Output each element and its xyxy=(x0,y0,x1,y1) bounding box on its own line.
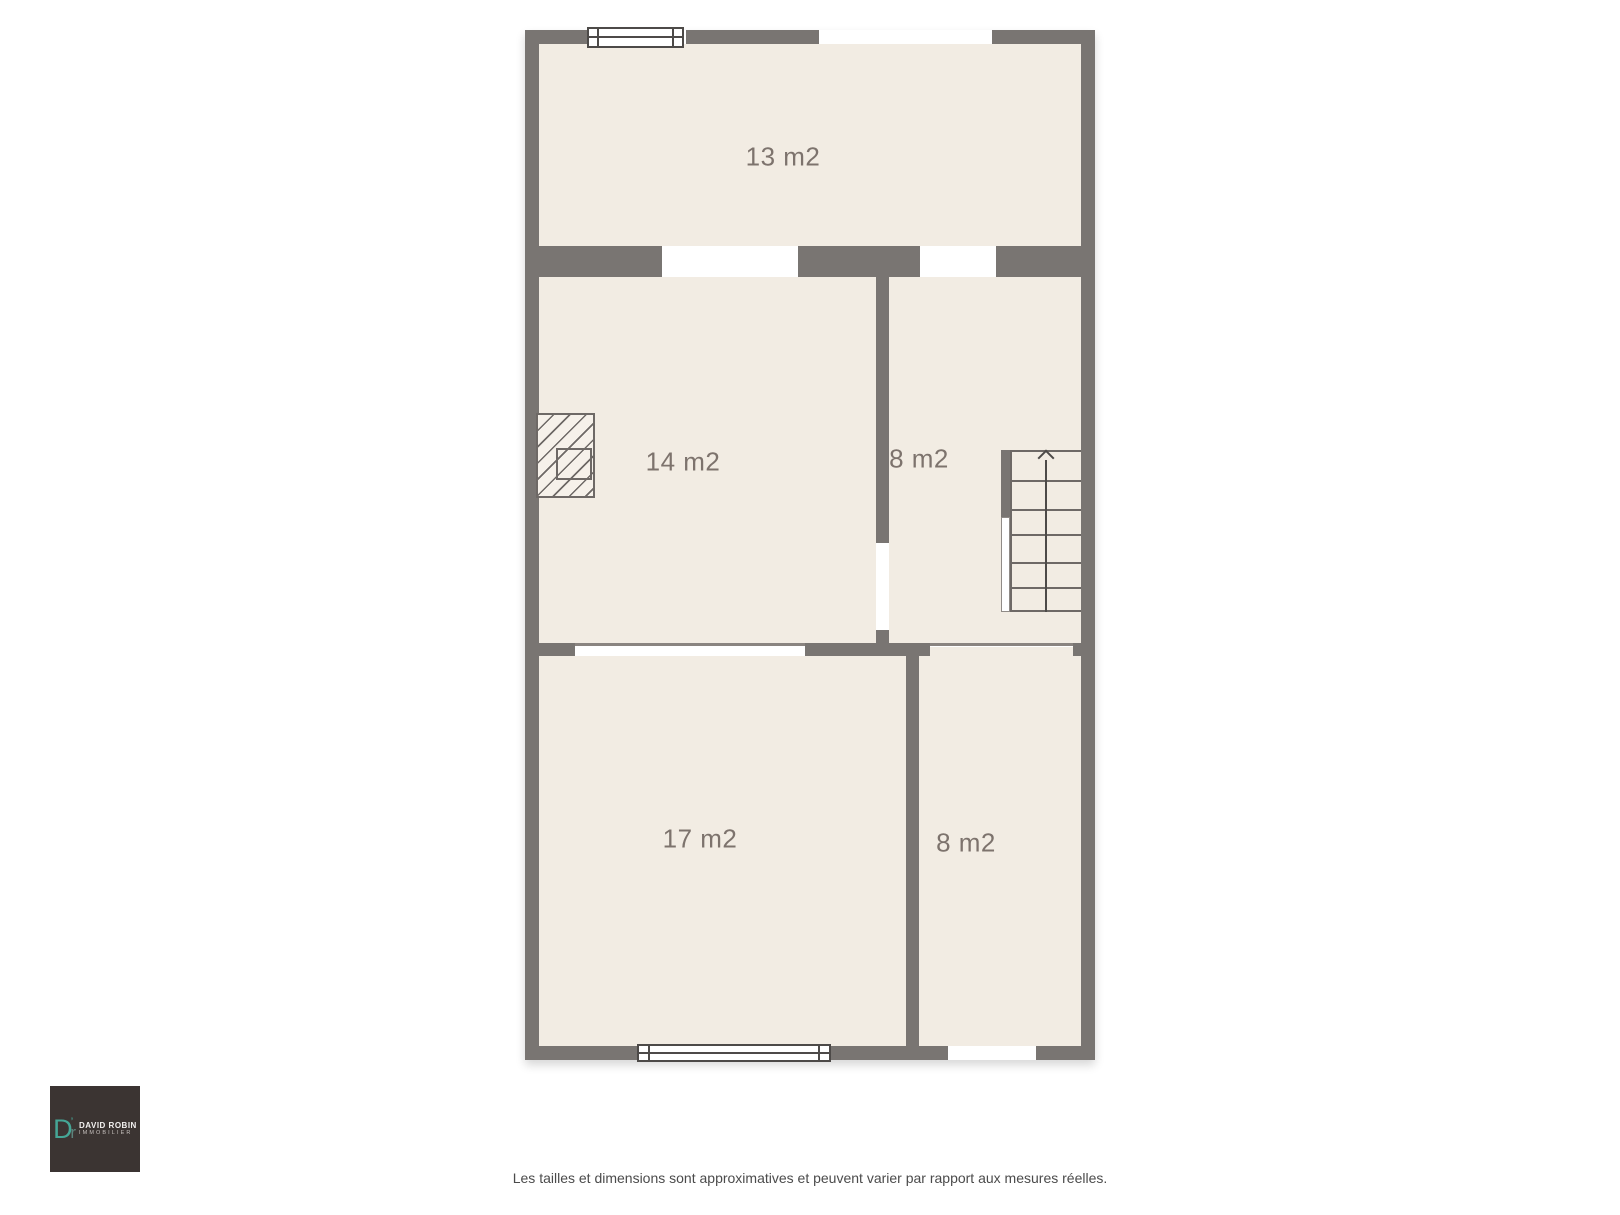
wall-divider-13-segment xyxy=(537,246,662,277)
wall-top-segment xyxy=(992,30,1095,44)
wall-bottom-segment xyxy=(831,1046,948,1060)
stairs-side-wall-stub xyxy=(1001,450,1010,517)
wall-17-8-divider xyxy=(906,656,919,1046)
wall-right-outer xyxy=(1081,30,1095,1060)
wall-divider-middle-segment xyxy=(538,643,575,656)
room-label-14m2: 14 m2 xyxy=(646,447,721,478)
room-label-13m2: 13 m2 xyxy=(746,142,821,173)
wall-bottom-segment xyxy=(525,1046,637,1060)
wall-divider-13-segment xyxy=(996,246,1081,277)
wall-divider-middle-segment xyxy=(1073,643,1081,656)
window-icon xyxy=(637,1044,831,1062)
wall-left-outer xyxy=(525,30,539,1060)
window-frame-line xyxy=(672,29,674,46)
window-frame-line xyxy=(639,1052,829,1054)
wall-divider-13-segment xyxy=(798,246,920,277)
window-frame-line xyxy=(597,29,599,46)
wall-top-segment xyxy=(525,30,589,44)
logo-monogram-r: r xyxy=(70,1124,76,1141)
agency-logo: D ’ r DAVID ROBIN IMMOBILIER xyxy=(50,1086,140,1172)
floor-plan-page: 13 m2 14 m2 8 m2 17 m2 8 m2 D ’ r DAVID … xyxy=(0,0,1620,1215)
wall-divider-middle-segment xyxy=(805,643,930,656)
stairs-direction-arrow xyxy=(1045,460,1047,612)
logo-subtitle-text: IMMOBILIER xyxy=(79,1130,137,1137)
logo-content: D ’ r DAVID ROBIN IMMOBILIER xyxy=(53,1116,137,1143)
logo-name-text: DAVID ROBIN xyxy=(79,1121,137,1131)
window-icon xyxy=(587,27,684,48)
room-label-8m2-bottom: 8 m2 xyxy=(936,828,996,859)
window-frame-line xyxy=(589,36,682,38)
chimney-inner-box xyxy=(556,448,592,480)
room-label-8m2-middle: 8 m2 xyxy=(889,444,949,475)
disclaimer-text: Les tailles et dimensions sont approxima… xyxy=(0,1170,1620,1186)
wall-top-segment xyxy=(686,30,819,44)
wall-bottom-segment xyxy=(1036,1046,1095,1060)
stairs-handrail xyxy=(1001,517,1010,612)
opening-edge-line xyxy=(575,643,805,646)
room-label-17m2: 17 m2 xyxy=(663,824,738,855)
window-frame-line xyxy=(648,1046,650,1060)
window-frame-line xyxy=(818,1046,820,1060)
wall-14-8-divider xyxy=(876,277,889,543)
stairwell-edge-line xyxy=(930,643,1073,646)
wall-14-8-divider-stub xyxy=(876,630,889,643)
